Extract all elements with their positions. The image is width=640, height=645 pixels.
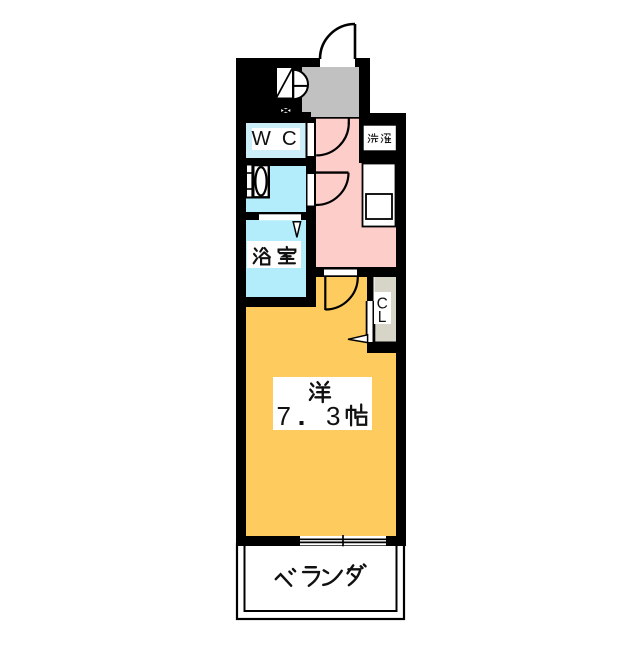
svg-text:L: L <box>378 309 387 326</box>
svg-text:3: 3 <box>326 401 340 431</box>
svg-text:7: 7 <box>277 401 291 431</box>
svg-text:WC: WC <box>252 127 308 150</box>
